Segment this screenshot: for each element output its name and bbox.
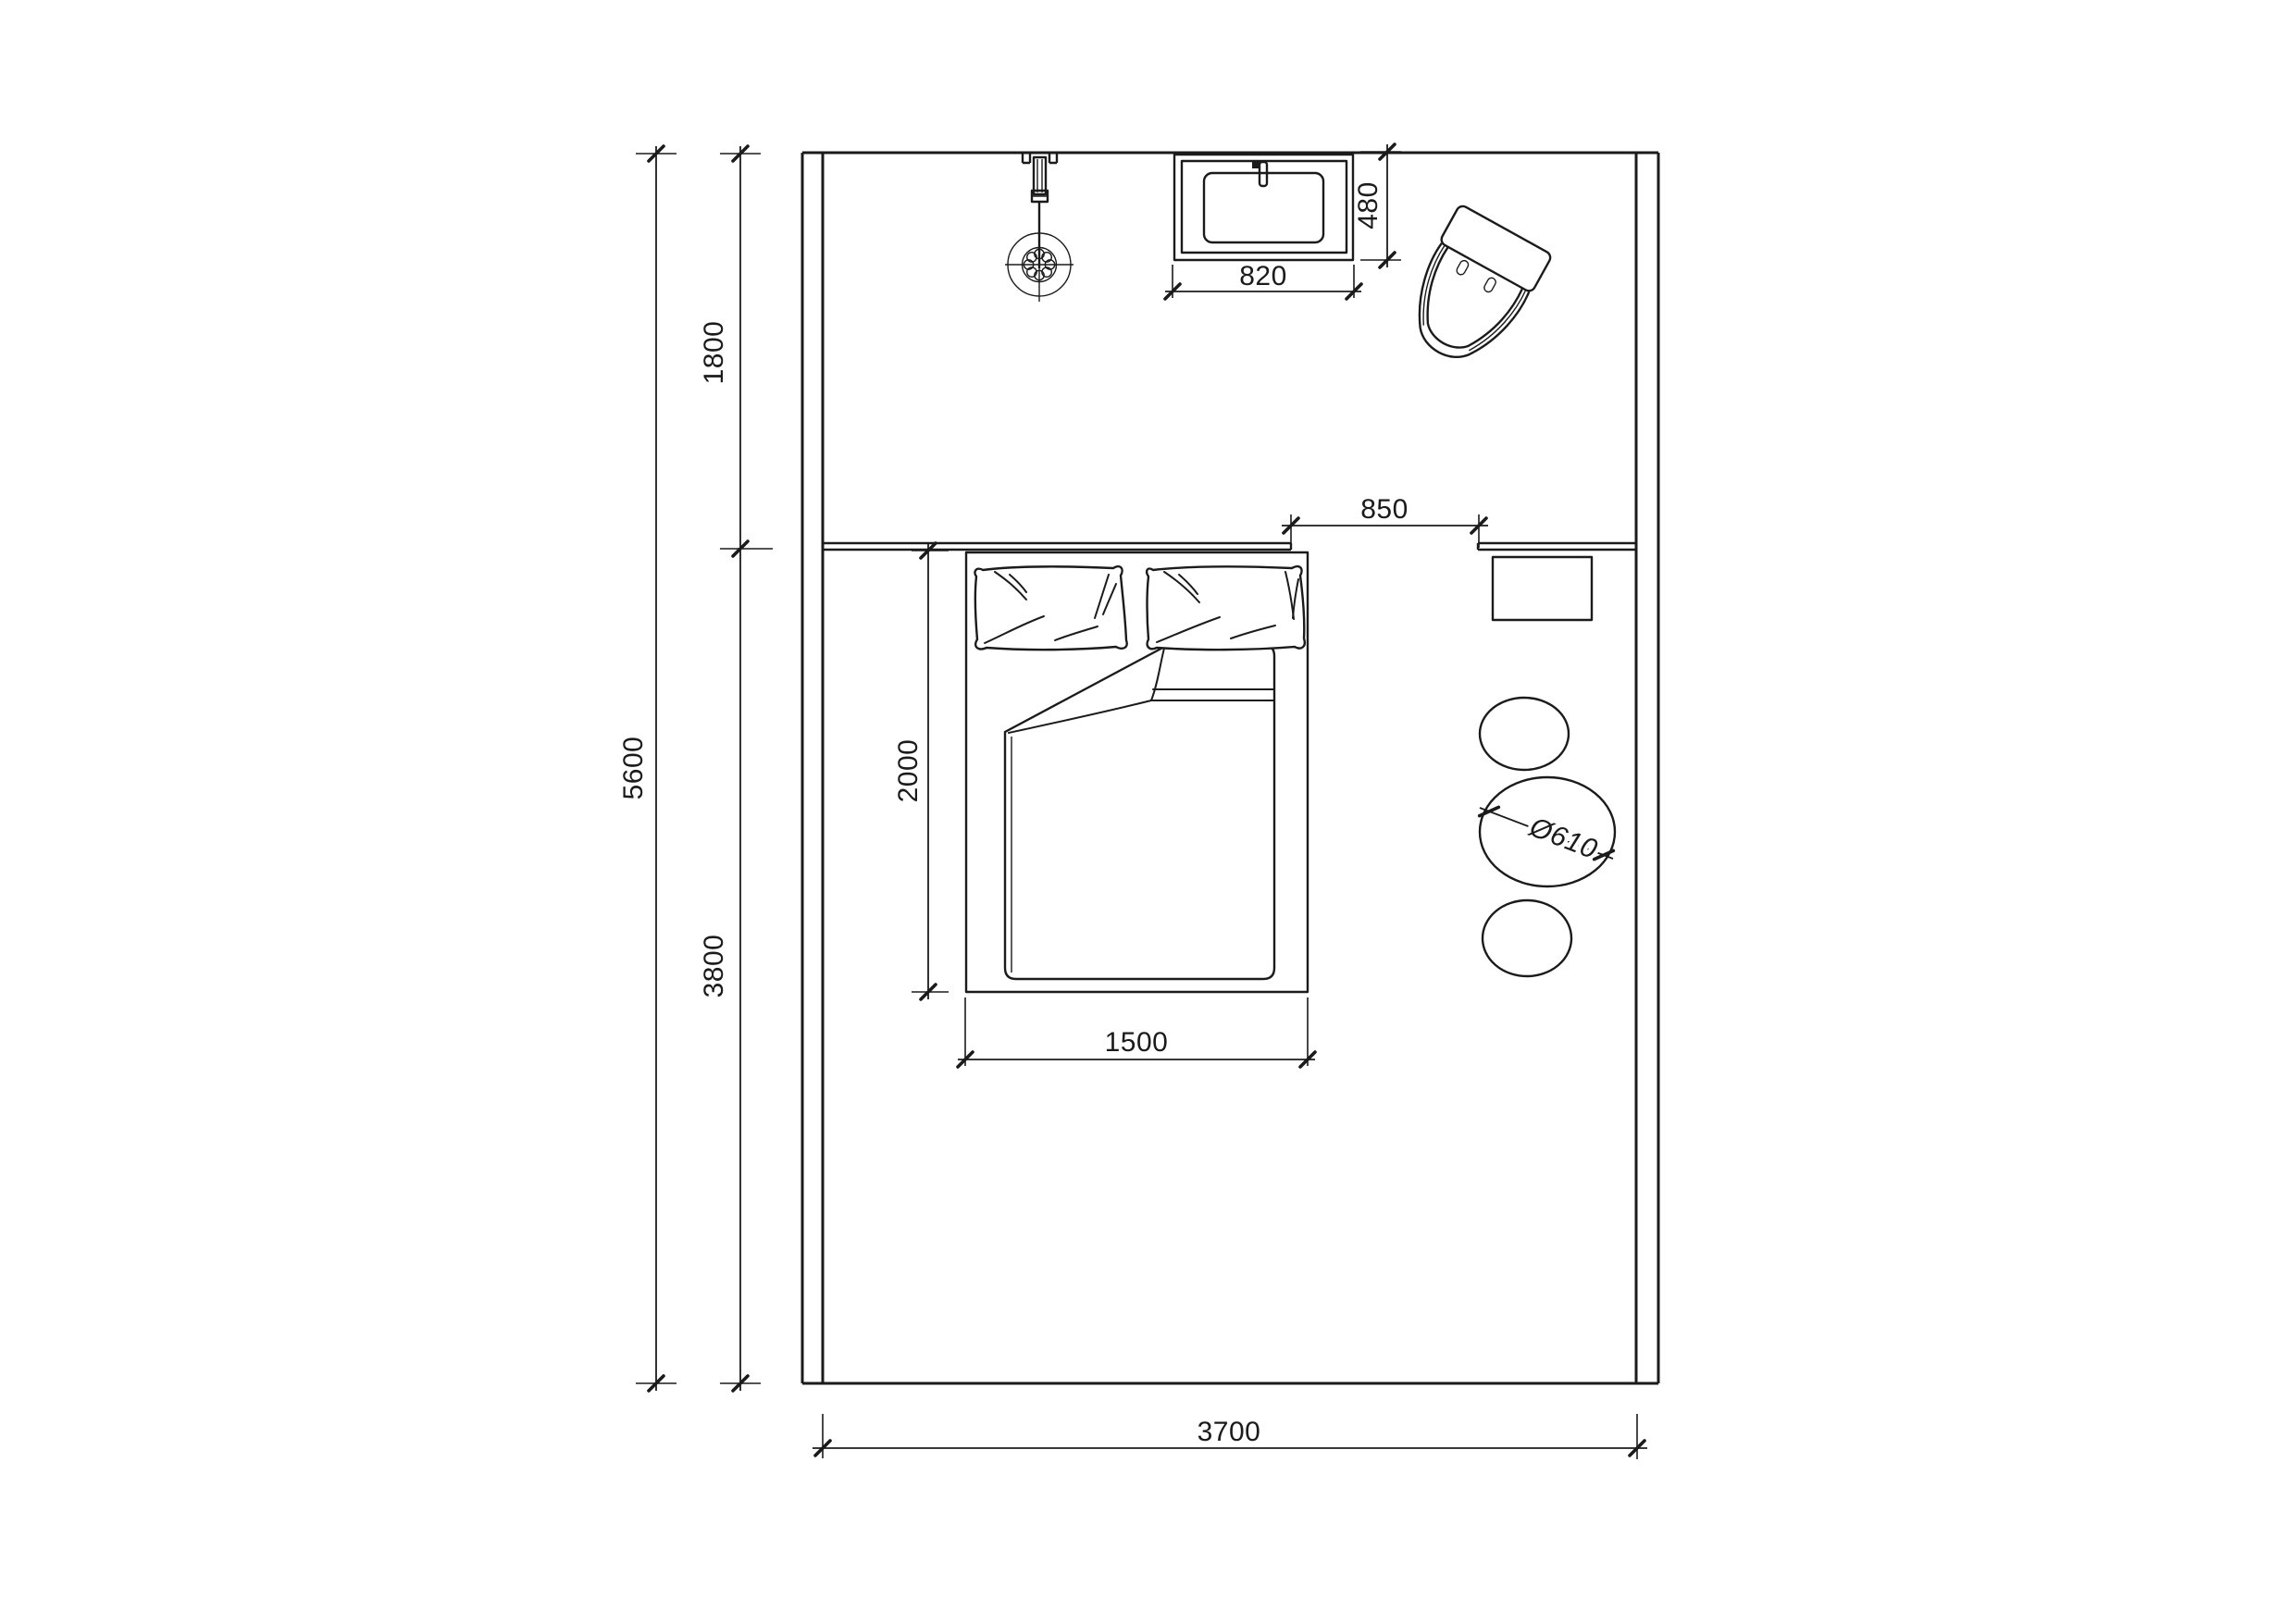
- headboard-ledge-left: [823, 543, 1291, 550]
- stool-bottom: [1483, 900, 1571, 976]
- dim-label-zone-top: 1800: [699, 321, 729, 385]
- floor-plan-canvas: 5600 1800 3800 2000 1500 850 820 480 370…: [0, 0, 2296, 1623]
- toilet-hinge: [1483, 277, 1497, 293]
- nightstand: [1493, 557, 1592, 620]
- dim-label-stool-diameter: Ø610: [1524, 811, 1601, 865]
- washbasin-counter: [1174, 155, 1353, 260]
- floor-plan-drawing: 5600 1800 3800 2000 1500 850 820 480 370…: [0, 0, 2296, 1623]
- bed: [966, 552, 1308, 992]
- shower-rail-tube: [1034, 157, 1046, 194]
- dim-label-bed-width: 1500: [1105, 1027, 1169, 1058]
- shower-fixture: [1005, 154, 1074, 302]
- pillow-left: [974, 566, 1126, 650]
- dim-label-basin-depth: 480: [1353, 181, 1384, 229]
- toilet-bowl-contour: [1469, 280, 1526, 361]
- toilet-hinge: [1456, 259, 1471, 276]
- washbasin: [1174, 155, 1353, 260]
- dim-label-room-width: 3700: [1198, 1417, 1261, 1447]
- stool-top: [1480, 698, 1569, 770]
- washbasin-bowl: [1204, 173, 1323, 242]
- toilet-tank: [1439, 204, 1552, 292]
- shower-bracket-hook: [1023, 154, 1030, 163]
- dim-label-basin-width: 820: [1239, 261, 1287, 291]
- toilet: [1392, 204, 1552, 378]
- headboard-ledge-right: [1478, 543, 1636, 550]
- shower-bracket-hook: [1049, 154, 1057, 163]
- dim-label-total-height: 5600: [618, 737, 649, 800]
- dim-label-zone-bottom: 3800: [699, 935, 729, 998]
- pillow-right: [1147, 566, 1305, 650]
- dim-label-bed-length: 2000: [893, 739, 924, 803]
- duvet: [1005, 645, 1274, 979]
- dim-label-passage: 850: [1360, 494, 1409, 525]
